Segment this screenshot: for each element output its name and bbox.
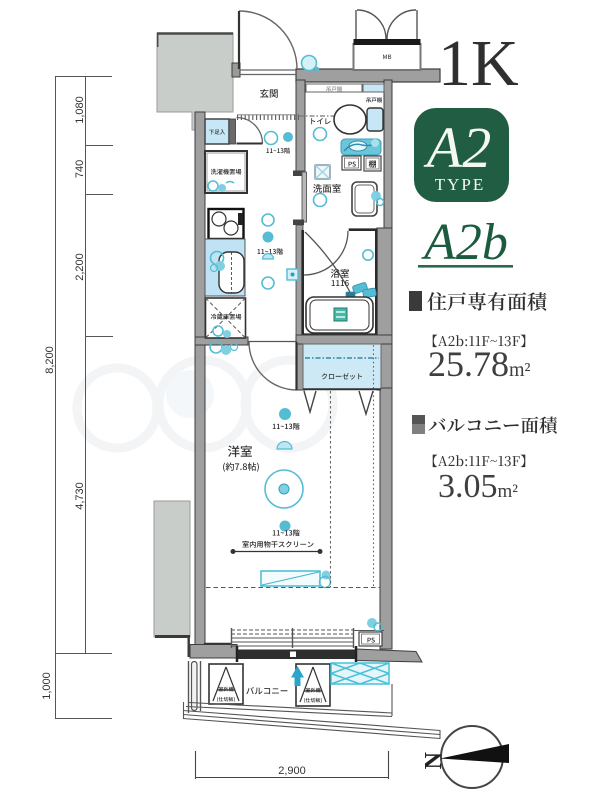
svg-text:3.05m²: 3.05m² xyxy=(438,468,518,505)
svg-text:1,000: 1,000 xyxy=(41,672,53,700)
svg-text:25.78m²: 25.78m² xyxy=(428,344,531,384)
svg-text:A2b: A2b xyxy=(421,214,508,271)
svg-text:8,200: 8,200 xyxy=(44,346,56,374)
svg-text:4,730: 4,730 xyxy=(74,482,86,510)
svg-text:740: 740 xyxy=(74,160,86,178)
svg-text:1K: 1K xyxy=(438,27,519,100)
svg-text:2,900: 2,900 xyxy=(278,765,306,777)
svg-text:1,080: 1,080 xyxy=(74,96,86,124)
svg-text:A2: A2 xyxy=(423,115,491,180)
svg-text:2,200: 2,200 xyxy=(74,253,86,281)
svg-text:N: N xyxy=(421,751,447,769)
svg-text:TYPE: TYPE xyxy=(435,175,486,194)
